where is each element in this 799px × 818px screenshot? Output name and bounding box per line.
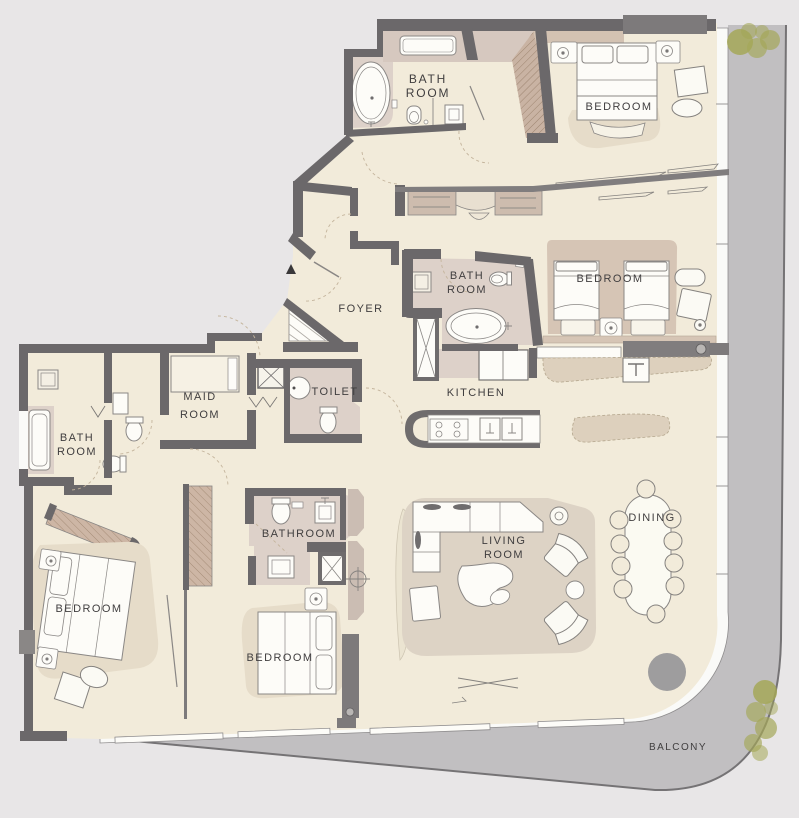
- svg-text:ROOM: ROOM: [447, 284, 487, 296]
- svg-text:BEDROOM: BEDROOM: [577, 273, 644, 285]
- svg-text:FOYER: FOYER: [338, 303, 383, 315]
- svg-text:BEDROOM: BEDROOM: [586, 101, 653, 113]
- svg-text:ROOM: ROOM: [484, 549, 524, 561]
- svg-text:ROOM: ROOM: [57, 446, 97, 458]
- svg-text:TOILET: TOILET: [311, 386, 358, 398]
- svg-text:BEDROOM: BEDROOM: [56, 603, 123, 615]
- svg-text:LIVING: LIVING: [482, 535, 527, 547]
- svg-text:BATH: BATH: [409, 72, 447, 86]
- svg-text:BATHROOM: BATHROOM: [262, 528, 336, 540]
- svg-text:KITCHEN: KITCHEN: [447, 387, 505, 399]
- svg-text:BALCONY: BALCONY: [649, 742, 707, 753]
- svg-text:BEDROOM: BEDROOM: [247, 652, 314, 664]
- svg-text:BATH: BATH: [450, 270, 484, 282]
- svg-text:DINING: DINING: [628, 512, 675, 524]
- svg-text:BATH: BATH: [60, 432, 94, 444]
- svg-text:ROOM: ROOM: [406, 86, 451, 100]
- svg-text:MAID: MAID: [183, 391, 216, 403]
- svg-text:ROOM: ROOM: [180, 409, 220, 421]
